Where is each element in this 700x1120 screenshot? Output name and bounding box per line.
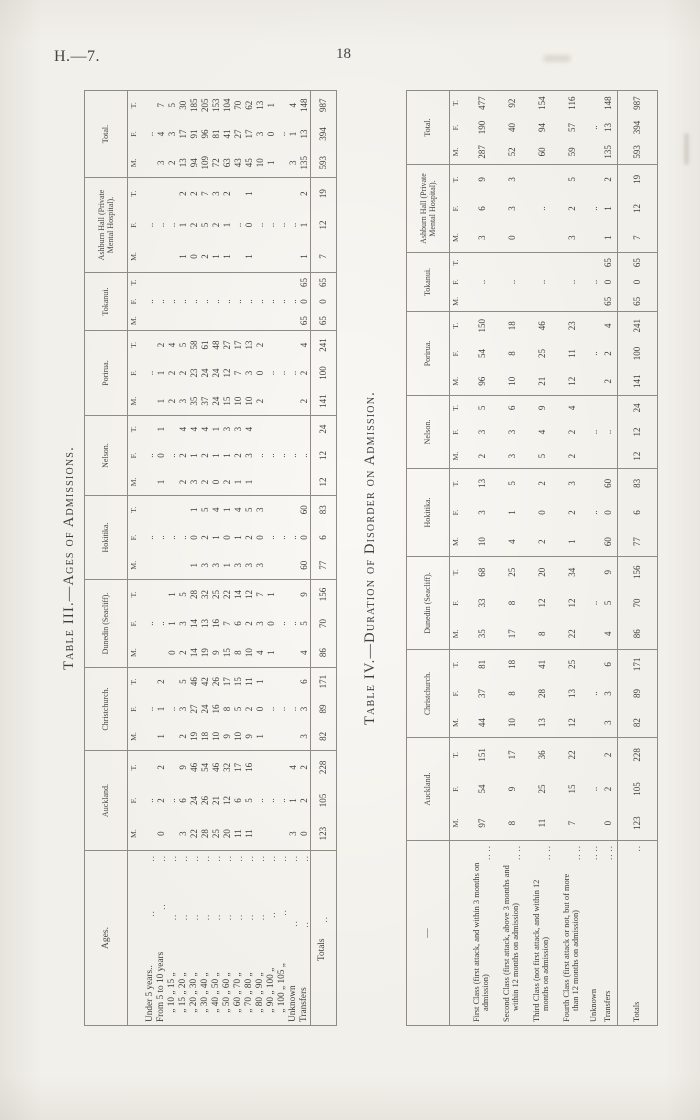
stub-header: Ages. xyxy=(85,851,128,1026)
data-cell xyxy=(167,241,178,273)
data-cell: 9 xyxy=(527,396,557,420)
data-cell: 4 xyxy=(527,420,557,444)
data-cell: 6 xyxy=(233,784,244,817)
row-label-cell: „ 40 „ 50 „.... xyxy=(211,851,222,1026)
data-cell xyxy=(145,751,156,784)
data-cell xyxy=(255,416,266,443)
data-cell: 11 xyxy=(244,817,255,850)
data-cell: 20 xyxy=(222,817,233,850)
data-cell: 5 xyxy=(244,784,255,817)
data-cell xyxy=(145,178,156,210)
data-cell: 36 xyxy=(527,738,557,772)
column-header: Ashburn Hall (Private Mental Hospital). xyxy=(85,178,128,273)
dot-leader: .. xyxy=(290,855,298,862)
column-header: Auckland. xyxy=(407,738,450,841)
data-cell: 7 xyxy=(156,91,167,120)
data-cell xyxy=(288,552,299,580)
data-cell: 2 xyxy=(557,194,587,223)
header-row-hospitals: —Auckland.Christchurch.Dunedin (Seacliff… xyxy=(407,91,450,1026)
data-cell: .. xyxy=(266,359,277,387)
data-cell: 7 xyxy=(200,178,211,210)
data-cell: 10 xyxy=(244,387,255,415)
data-cell: 0 xyxy=(527,498,557,527)
data-cell: 27 xyxy=(222,331,233,359)
data-cell: 15 xyxy=(222,387,233,415)
data-cell: 13 xyxy=(557,679,587,708)
data-cell: 1 xyxy=(299,241,310,273)
data-cell: 2 xyxy=(601,340,617,368)
data-cell: 33 xyxy=(467,588,497,619)
data-cell xyxy=(587,165,601,194)
data-cell xyxy=(277,311,288,330)
data-cell xyxy=(167,311,178,330)
data-cell: 0 xyxy=(601,498,617,527)
data-cell: .. xyxy=(145,695,156,723)
data-cell: 5 xyxy=(178,580,189,609)
column-header: Nelson. xyxy=(407,396,450,469)
data-cell: 3 xyxy=(233,416,244,443)
data-cell xyxy=(266,469,277,496)
data-cell xyxy=(288,668,299,696)
row-label: „ 40 „ 50 „ xyxy=(212,972,222,1022)
data-cell: 5 xyxy=(467,396,497,420)
data-cell: 2 xyxy=(467,444,497,468)
data-cell: .. xyxy=(527,194,557,223)
table-row: Second Class (first attack, above 3 mont… xyxy=(497,91,527,1026)
dot-leader: .. xyxy=(513,854,521,861)
data-cell: 2 xyxy=(156,751,167,784)
data-cell xyxy=(527,292,557,312)
table4-title: Table IV.—Duration of Disorder on Admiss… xyxy=(362,90,379,1026)
data-cell: 82 xyxy=(310,723,336,751)
data-cell xyxy=(277,668,288,696)
data-cell: .. xyxy=(587,679,601,708)
data-cell xyxy=(557,252,587,272)
data-cell: 4 xyxy=(178,416,189,443)
data-cell: 394 xyxy=(310,120,336,149)
data-cell: 8 xyxy=(497,340,527,368)
data-cell: 22 xyxy=(557,738,587,772)
subcolumn-header: M. xyxy=(450,140,468,165)
data-cell xyxy=(145,149,156,178)
data-cell: 15 xyxy=(233,668,244,696)
subcolumn-header: M. xyxy=(128,817,146,850)
data-cell: .. xyxy=(601,420,617,444)
subcolumn-header: F. xyxy=(128,442,146,469)
data-cell xyxy=(167,273,178,292)
data-cell: 1 xyxy=(222,552,233,580)
totals-row: Totals..12310522882891718670156776831212… xyxy=(617,91,657,1026)
data-cell: 34 xyxy=(557,556,587,587)
subcolumn-header: F. xyxy=(450,588,468,619)
data-cell xyxy=(156,580,167,609)
data-cell: 0 xyxy=(617,272,657,292)
data-cell: 45 xyxy=(244,149,255,178)
data-cell: 12 xyxy=(617,194,657,223)
data-cell xyxy=(288,580,299,609)
data-cell: .. xyxy=(587,340,601,368)
data-cell xyxy=(167,817,178,850)
data-cell: 6 xyxy=(467,194,497,223)
data-cell xyxy=(145,552,156,580)
data-cell: .. xyxy=(288,442,299,469)
data-cell: 81 xyxy=(211,120,222,149)
dot-leader: .. xyxy=(202,855,210,862)
data-cell xyxy=(277,469,288,496)
data-cell: .. xyxy=(266,784,277,817)
data-cell: 0 xyxy=(156,442,167,469)
data-cell: 8 xyxy=(222,695,233,723)
dot-leader: .. xyxy=(257,855,265,862)
row-label-cell: Under 5 years...... xyxy=(145,851,156,1026)
data-cell: .. xyxy=(288,609,299,638)
data-cell xyxy=(145,496,156,524)
data-cell: .. xyxy=(255,292,266,311)
data-cell: 148 xyxy=(601,91,617,116)
data-cell: 22 xyxy=(557,619,587,650)
data-cell: 13 xyxy=(299,120,310,149)
data-cell xyxy=(145,668,156,696)
data-cell: 15 xyxy=(222,638,233,667)
data-cell: 9 xyxy=(467,165,497,194)
data-cell: .. xyxy=(178,292,189,311)
data-cell: 5 xyxy=(244,496,255,524)
data-cell xyxy=(288,416,299,443)
data-cell: .. xyxy=(288,524,299,552)
data-cell: 17 xyxy=(222,668,233,696)
data-cell: .. xyxy=(587,115,601,140)
data-cell: 10 xyxy=(497,708,527,737)
data-cell xyxy=(266,178,277,210)
row-label-cell: Transfers.... xyxy=(299,851,310,1026)
data-cell: .. xyxy=(266,209,277,241)
data-cell xyxy=(527,252,557,272)
data-cell: 68 xyxy=(467,556,497,587)
data-cell xyxy=(211,273,222,292)
data-cell: 54 xyxy=(467,340,497,368)
data-cell: 22 xyxy=(189,817,200,850)
data-cell: 14 xyxy=(189,609,200,638)
data-cell xyxy=(601,444,617,468)
data-cell xyxy=(189,311,200,330)
data-cell: 6 xyxy=(617,498,657,527)
data-cell: 10 xyxy=(233,387,244,415)
data-cell: 5 xyxy=(601,588,617,619)
data-cell xyxy=(178,311,189,330)
column-header: Christchurch. xyxy=(85,668,128,751)
data-cell: 30 xyxy=(178,91,189,120)
data-cell: 154 xyxy=(527,91,557,116)
dot-leader: .. xyxy=(301,855,309,862)
data-cell xyxy=(167,552,178,580)
data-cell: 5 xyxy=(299,609,310,638)
data-cell: 3 xyxy=(211,178,222,210)
dot-leader: .. xyxy=(573,854,581,861)
table-row: „ 60 „ 70 „....1161710515861431412310717… xyxy=(233,91,244,1026)
table4-rotated-block: Table IV.—Duration of Disorder on Admiss… xyxy=(362,90,660,1026)
data-cell xyxy=(277,273,288,292)
data-cell xyxy=(266,416,277,443)
data-cell: .. xyxy=(266,292,277,311)
column-header: Christchurch. xyxy=(407,650,450,738)
data-cell: 6 xyxy=(497,396,527,420)
row-label-cell: Unknown.... xyxy=(288,851,299,1026)
data-cell: 2 xyxy=(200,241,211,273)
data-cell xyxy=(145,241,156,273)
data-cell xyxy=(200,311,211,330)
subcolumn-header: M. xyxy=(128,311,146,330)
data-cell: 9 xyxy=(178,751,189,784)
data-cell xyxy=(189,273,200,292)
data-cell xyxy=(277,552,288,580)
dot-leader: .. xyxy=(513,845,521,852)
data-cell: .. xyxy=(587,588,601,619)
data-cell xyxy=(145,723,156,751)
table-row: „ 30 „ 40 „....2826541824421913323252243… xyxy=(200,91,211,1026)
data-cell: 1 xyxy=(244,469,255,496)
subcolumn-header: T. xyxy=(128,751,146,784)
dot-leader: .. xyxy=(213,855,221,862)
data-cell: 2 xyxy=(178,442,189,469)
data-cell: 54 xyxy=(200,751,211,784)
stub-header-spacer xyxy=(128,851,146,1026)
subcolumn-header: T. xyxy=(128,273,146,292)
data-cell: 3 xyxy=(222,416,233,443)
data-cell: 2 xyxy=(222,178,233,210)
data-cell: 171 xyxy=(617,650,657,679)
data-cell: 92 xyxy=(497,91,527,116)
data-cell xyxy=(277,723,288,751)
subcolumn-header: F. xyxy=(450,194,468,223)
data-cell: 3 xyxy=(467,223,497,252)
data-cell: 7 xyxy=(557,806,587,840)
data-cell: 205 xyxy=(200,91,211,120)
data-cell xyxy=(211,311,222,330)
data-cell: 3 xyxy=(178,387,189,415)
data-cell xyxy=(233,273,244,292)
data-cell: 2 xyxy=(178,469,189,496)
data-cell: 83 xyxy=(310,496,336,524)
data-cell: 1 xyxy=(156,416,167,443)
data-cell: 25 xyxy=(497,556,527,587)
table-row: Fourth Class (first attack or not, but o… xyxy=(557,91,587,1026)
data-cell: 3 xyxy=(288,817,299,850)
dot-leader: .. xyxy=(169,855,177,862)
data-cell: .. xyxy=(145,524,156,552)
data-cell xyxy=(288,496,299,524)
subcolumn-header: F. xyxy=(450,340,468,368)
column-header: Tokanui. xyxy=(85,273,128,331)
data-cell xyxy=(156,273,167,292)
data-cell: 1 xyxy=(156,387,167,415)
stub-header: — xyxy=(407,841,450,1026)
subcolumn-header: T. xyxy=(450,650,468,679)
dot-leader: .. xyxy=(279,855,287,862)
report-code: H.—7. xyxy=(54,48,100,66)
data-cell: 135 xyxy=(299,149,310,178)
data-cell: .. xyxy=(145,784,156,817)
data-cell: 3 xyxy=(497,194,527,223)
data-cell: 394 xyxy=(617,115,657,140)
data-cell xyxy=(156,241,167,273)
data-cell xyxy=(601,396,617,420)
header-row-mft: M.F.T.M.F.T.M.F.T.M.F.T.M.F.T.M.F.T.M.F.… xyxy=(128,91,146,1026)
data-cell: 1 xyxy=(266,580,277,609)
data-cell: 3 xyxy=(497,420,527,444)
data-cell: .. xyxy=(277,292,288,311)
data-cell: 60 xyxy=(527,140,557,165)
subcolumn-header: T. xyxy=(450,311,468,339)
data-cell: 2 xyxy=(167,387,178,415)
data-cell: 13 xyxy=(200,609,211,638)
data-cell: 89 xyxy=(617,679,657,708)
data-cell: 0 xyxy=(156,817,167,850)
row-label-cell: Second Class (first attack, above 3 mont… xyxy=(497,841,527,1026)
row-label: „ 10 „ 15 „ xyxy=(168,972,178,1022)
subcolumn-header: M. xyxy=(450,806,468,840)
data-cell: 3 xyxy=(156,149,167,178)
data-cell: .. xyxy=(277,359,288,387)
subcolumn-header: M. xyxy=(450,619,468,650)
data-cell: 28 xyxy=(527,679,557,708)
data-cell: 13 xyxy=(244,331,255,359)
data-cell: 1 xyxy=(156,359,167,387)
row-label-cell: „ 20 „ 30 „.... xyxy=(189,851,200,1026)
data-cell: 70 xyxy=(617,588,657,619)
dot-leader: .. xyxy=(483,845,491,852)
subcolumn-header: M. xyxy=(128,469,146,496)
data-cell: 2 xyxy=(233,442,244,469)
data-cell: 10 xyxy=(497,368,527,396)
subcolumn-header: M. xyxy=(450,368,468,396)
data-cell: 60 xyxy=(299,552,310,580)
subcolumn-header: F. xyxy=(450,420,468,444)
table-row: Transfers....02233645960060..22465065112… xyxy=(299,91,310,1026)
data-cell xyxy=(233,178,244,210)
data-cell: .. xyxy=(145,442,156,469)
data-cell: 2 xyxy=(200,442,211,469)
column-header: Dunedin (Seacliff). xyxy=(85,580,128,668)
data-cell: 6 xyxy=(299,668,310,696)
table-row: Transfers....02233645960060..22465065112… xyxy=(601,91,617,1026)
row-label: „ 60 „ 70 „ xyxy=(234,972,244,1022)
data-cell: .. xyxy=(145,609,156,638)
data-cell: .. xyxy=(211,292,222,311)
data-cell: 1 xyxy=(222,442,233,469)
data-cell xyxy=(557,292,587,312)
data-cell xyxy=(587,140,601,165)
data-cell xyxy=(266,241,277,273)
data-cell: .. xyxy=(277,120,288,149)
data-cell: 10 xyxy=(244,638,255,667)
data-cell: 25 xyxy=(557,650,587,679)
data-cell xyxy=(277,751,288,784)
data-cell: 2 xyxy=(299,178,310,210)
table3-title: Table III.—Ages of Admissions. xyxy=(61,90,78,1026)
data-cell xyxy=(587,556,601,587)
page-number: 18 xyxy=(336,46,351,63)
data-cell: 9 xyxy=(299,580,310,609)
data-cell: 12 xyxy=(222,784,233,817)
data-cell: 2 xyxy=(167,149,178,178)
data-cell: 21 xyxy=(211,784,222,817)
data-cell: 13 xyxy=(601,115,617,140)
row-label-cell: „ 60 „ 70 „.... xyxy=(233,851,244,1026)
data-cell: 5 xyxy=(178,668,189,696)
data-cell: 2 xyxy=(167,359,178,387)
data-cell: 0 xyxy=(222,524,233,552)
subcolumn-header: M. xyxy=(128,241,146,273)
data-cell xyxy=(277,580,288,609)
subcolumn-header: F. xyxy=(128,120,146,149)
data-cell: 17 xyxy=(178,120,189,149)
data-cell: 77 xyxy=(617,527,657,556)
data-cell: .. xyxy=(288,359,299,387)
subcolumn-header: T. xyxy=(450,91,468,116)
data-cell: .. xyxy=(156,292,167,311)
data-cell: 3 xyxy=(601,708,617,737)
data-cell: 24 xyxy=(200,695,211,723)
subcolumn-header: F. xyxy=(128,784,146,817)
data-cell: 2 xyxy=(200,524,211,552)
data-cell: 1 xyxy=(288,784,299,817)
data-cell: 18 xyxy=(497,311,527,339)
data-cell: 0 xyxy=(266,120,277,149)
data-cell: 32 xyxy=(222,751,233,784)
row-label: „ 15 „ 20 „ xyxy=(179,972,189,1022)
data-cell xyxy=(178,496,189,524)
data-cell xyxy=(266,817,277,850)
data-cell: 24 xyxy=(211,359,222,387)
data-cell: 96 xyxy=(467,368,497,396)
subcolumn-header: M. xyxy=(450,527,468,556)
data-cell xyxy=(167,178,178,210)
data-cell: 28 xyxy=(189,580,200,609)
data-cell: 105 xyxy=(310,784,336,817)
data-cell: 190 xyxy=(467,115,497,140)
data-cell: 10 xyxy=(467,527,497,556)
data-cell: 37 xyxy=(200,387,211,415)
data-cell: .. xyxy=(178,524,189,552)
data-cell xyxy=(587,619,601,650)
data-cell: 116 xyxy=(557,91,587,116)
data-cell xyxy=(266,273,277,292)
data-cell: 24 xyxy=(211,387,222,415)
data-cell: 60 xyxy=(299,496,310,524)
data-cell: 16 xyxy=(211,609,222,638)
data-cell: 60 xyxy=(601,469,617,498)
row-label: „ 30 „ 40 „ xyxy=(201,972,211,1022)
data-cell: 10 xyxy=(233,723,244,751)
data-cell: 2 xyxy=(299,387,310,415)
data-cell: 24 xyxy=(189,784,200,817)
data-cell xyxy=(167,668,178,696)
data-cell: 123 xyxy=(310,817,336,850)
table-row: „ 90 „ 100 „........101..........101 xyxy=(266,91,277,1026)
data-cell: .. xyxy=(266,442,277,469)
subcolumn-header: T. xyxy=(450,165,468,194)
data-cell xyxy=(288,178,299,210)
data-cell: 81 xyxy=(467,650,497,679)
data-cell: 9 xyxy=(211,638,222,667)
data-cell xyxy=(587,527,601,556)
data-cell: 3 xyxy=(178,609,189,638)
data-cell xyxy=(277,638,288,667)
subcolumn-header: F. xyxy=(128,359,146,387)
data-cell xyxy=(244,273,255,292)
table-row: First Class (first attack, and within 3 … xyxy=(467,91,497,1026)
data-cell: 1 xyxy=(601,223,617,252)
